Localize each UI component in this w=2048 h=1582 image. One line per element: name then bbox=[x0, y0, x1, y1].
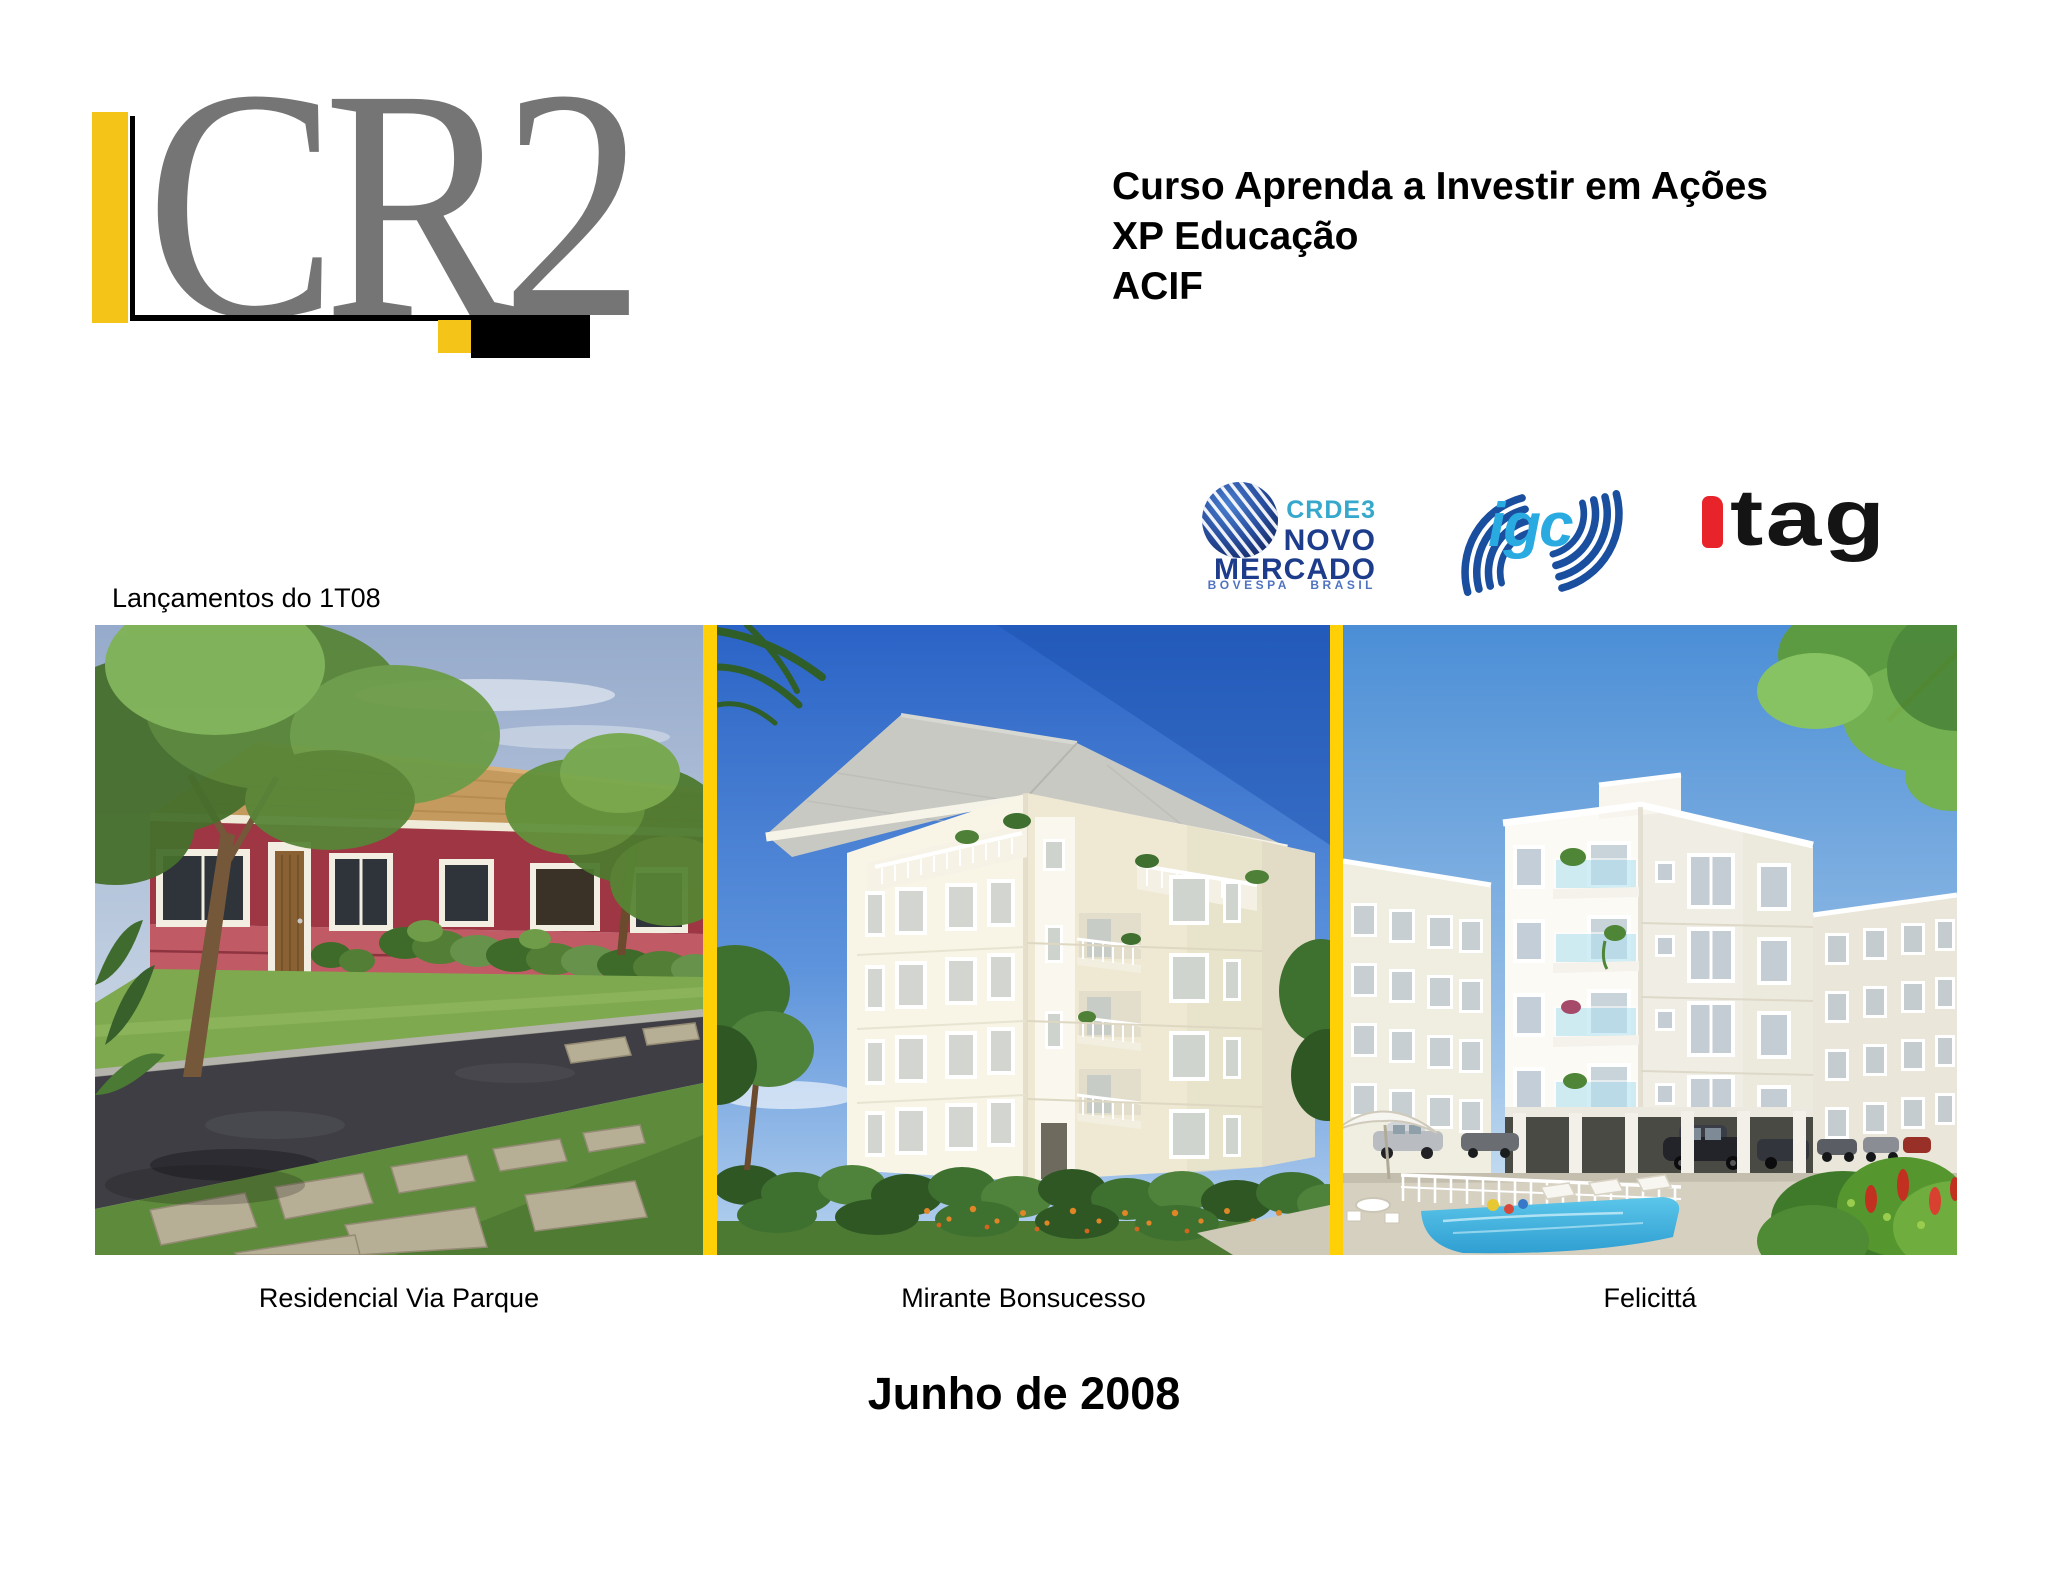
condo-render-illustration bbox=[1343, 625, 1957, 1255]
globe-icon bbox=[1198, 478, 1282, 562]
heading-line-2: XP Educação bbox=[1112, 212, 1952, 262]
itag-seal: tag bbox=[1700, 488, 1920, 583]
photo-residencial-via-parque bbox=[95, 625, 703, 1255]
slide: CR2 Curso Aprenda a Investir em Ações XP… bbox=[0, 0, 2048, 1582]
logo-black-line-horizontal bbox=[130, 315, 472, 321]
itag-wordmark: tag bbox=[1730, 478, 1888, 558]
building-render-illustration bbox=[717, 625, 1330, 1255]
igc-seal: igc bbox=[1450, 470, 1634, 616]
itag-i-mark-icon bbox=[1702, 496, 1723, 548]
yellow-separator bbox=[703, 625, 717, 1255]
igc-wordmark: igc bbox=[1488, 490, 1572, 561]
caption-residencial-via-parque: Residencial Via Parque bbox=[95, 1283, 703, 1314]
heading-line-3: ACIF bbox=[1112, 262, 1952, 312]
logo-black-line-vertical bbox=[130, 116, 135, 317]
novo-mercado-seal: CRDE3 NOVO MERCADO BOVESPA BRASIL bbox=[1198, 476, 1376, 598]
novo-mercado-ticker: CRDE3 bbox=[1286, 496, 1376, 525]
section-label: Lançamentos do 1T08 bbox=[112, 583, 381, 614]
logo-yellow-square bbox=[438, 320, 471, 353]
slide-date-title: Junho de 2008 bbox=[0, 1368, 2048, 1420]
photo-mirante-bonsucesso bbox=[717, 625, 1330, 1255]
logo-yellow-bar bbox=[92, 112, 128, 323]
logo-black-rectangle bbox=[471, 315, 590, 358]
caption-felicitta: Felicittá bbox=[1343, 1283, 1957, 1314]
yellow-separator bbox=[1330, 625, 1343, 1255]
photo-felicitta bbox=[1343, 625, 1957, 1255]
heading-line-1: Curso Aprenda a Investir em Ações bbox=[1112, 162, 1952, 212]
photo-strip bbox=[95, 625, 1957, 1255]
novo-mercado-tagline: BOVESPA BRASIL bbox=[1208, 578, 1376, 592]
house-render-illustration bbox=[95, 625, 703, 1255]
course-heading: Curso Aprenda a Investir em Ações XP Edu… bbox=[1112, 162, 1952, 312]
caption-mirante-bonsucesso: Mirante Bonsucesso bbox=[717, 1283, 1330, 1314]
